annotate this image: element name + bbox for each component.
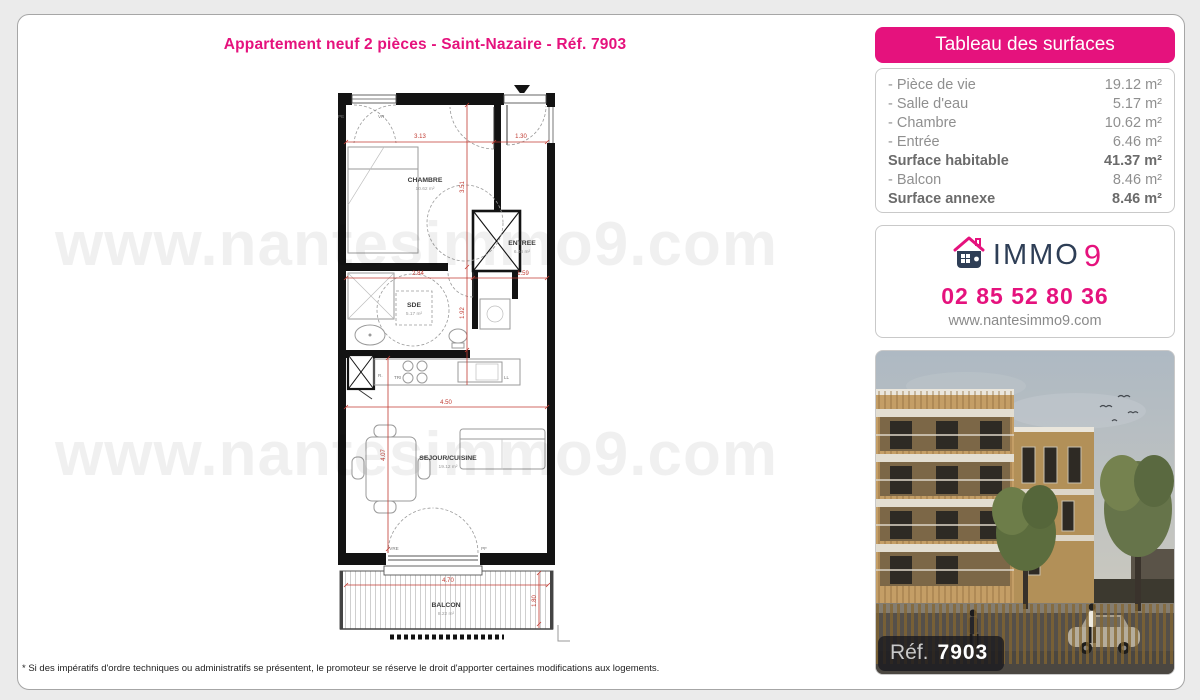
svg-text:8.22 m²: 8.22 m² bbox=[438, 611, 455, 617]
svg-text:1.30: 1.30 bbox=[515, 134, 527, 140]
table-row: - Pièce de vie 19.12 m² bbox=[888, 76, 1162, 95]
contact-box: IMMO9 02 85 52 80 36 www.nantesimmo9.com bbox=[875, 225, 1175, 338]
floor-plan: 3.13 1.30 3.51 1.92 2.84 1.59 4.50 4.07 … bbox=[308, 85, 583, 643]
room-label-sejour: SEJOUR/CUISINE bbox=[419, 455, 477, 462]
row-value: 10.62 m² bbox=[1105, 114, 1162, 133]
row-label: Surface annexe bbox=[888, 190, 995, 209]
svg-text:19.12 m²: 19.12 m² bbox=[439, 464, 458, 470]
row-value: 19.12 m² bbox=[1105, 76, 1162, 95]
legal-footnote: * Si des impératifs d'ordre techniques o… bbox=[22, 663, 722, 674]
house-logo-icon bbox=[949, 234, 989, 277]
brand-logo: IMMO9 bbox=[949, 234, 1101, 277]
website-url[interactable]: www.nantesimmo9.com bbox=[948, 313, 1101, 329]
svg-text:2.84: 2.84 bbox=[412, 271, 424, 277]
svg-text:PF: PF bbox=[481, 546, 487, 551]
table-row: - Balcon 8.46 m² bbox=[888, 171, 1162, 190]
table-row: - Entrée 6.46 m² bbox=[888, 133, 1162, 152]
brand-text-immo: IMMO bbox=[993, 239, 1080, 272]
door-swings bbox=[352, 105, 546, 553]
row-label: - Chambre bbox=[888, 114, 957, 133]
row-value: 8.46 m² bbox=[1112, 190, 1162, 209]
svg-text:1.92: 1.92 bbox=[460, 307, 466, 319]
room-label-chambre: CHAMBRE bbox=[408, 177, 443, 184]
room-labels: CHAMBRE 10.62 m² ENTREE 6.46 m² SDE 5.17… bbox=[406, 177, 536, 617]
svg-text:10.62 m²: 10.62 m² bbox=[416, 186, 435, 192]
row-value: 6.46 m² bbox=[1113, 133, 1162, 152]
svg-text:LL: LL bbox=[504, 375, 510, 380]
svg-text:R.: R. bbox=[378, 373, 383, 378]
svg-text:TRI: TRI bbox=[394, 375, 401, 380]
table-row-total-habitable: Surface habitable 41.37 m² bbox=[888, 152, 1162, 171]
svg-text:1.80: 1.80 bbox=[532, 595, 538, 607]
row-value: 5.17 m² bbox=[1113, 95, 1162, 114]
svg-text:PE: PE bbox=[338, 114, 344, 119]
ref-label: Réf. bbox=[890, 641, 929, 665]
row-value: 41.37 m² bbox=[1104, 152, 1162, 171]
svg-text:VR: VR bbox=[378, 114, 385, 119]
svg-text:VRE: VRE bbox=[389, 546, 398, 551]
brand-text-9: 9 bbox=[1084, 238, 1101, 274]
room-label-sde: SDE bbox=[407, 302, 421, 309]
row-label: - Pièce de vie bbox=[888, 76, 976, 95]
svg-text:6.46 m²: 6.46 m² bbox=[514, 249, 531, 255]
table-row: - Chambre 10.62 m² bbox=[888, 114, 1162, 133]
page-title: Appartement neuf 2 pièces - Saint-Nazair… bbox=[25, 36, 825, 54]
svg-text:1.59: 1.59 bbox=[517, 271, 529, 277]
svg-text:4.50: 4.50 bbox=[440, 400, 452, 406]
room-label-entree: ENTREE bbox=[508, 240, 536, 247]
table-row-total-annexe: Surface annexe 8.46 m² bbox=[888, 190, 1162, 209]
row-label: - Balcon bbox=[888, 171, 941, 190]
row-label: - Entrée bbox=[888, 133, 940, 152]
svg-text:4.07: 4.07 bbox=[381, 449, 387, 461]
svg-text:4.70: 4.70 bbox=[442, 578, 454, 584]
surfaces-table-header: Tableau des surfaces bbox=[875, 27, 1175, 63]
row-label: Surface habitable bbox=[888, 152, 1009, 171]
row-value: 8.46 m² bbox=[1113, 171, 1162, 190]
table-row: - Salle d'eau 5.17 m² bbox=[888, 95, 1162, 114]
reference-badge: Réf. 7903 bbox=[878, 636, 1004, 671]
svg-text:5.17 m²: 5.17 m² bbox=[406, 311, 423, 317]
walls bbox=[338, 93, 555, 565]
row-label: - Salle d'eau bbox=[888, 95, 968, 114]
room-label-balcon: BALCON bbox=[431, 602, 460, 609]
svg-text:3.51: 3.51 bbox=[460, 181, 466, 193]
svg-text:3.13: 3.13 bbox=[414, 134, 426, 140]
phone-number[interactable]: 02 85 52 80 36 bbox=[941, 283, 1108, 310]
windows bbox=[352, 93, 555, 575]
surfaces-table: - Pièce de vie 19.12 m² - Salle d'eau 5.… bbox=[875, 68, 1175, 213]
building-photo: Réf. 7903 bbox=[875, 350, 1175, 675]
ref-number: 7903 bbox=[938, 641, 989, 665]
